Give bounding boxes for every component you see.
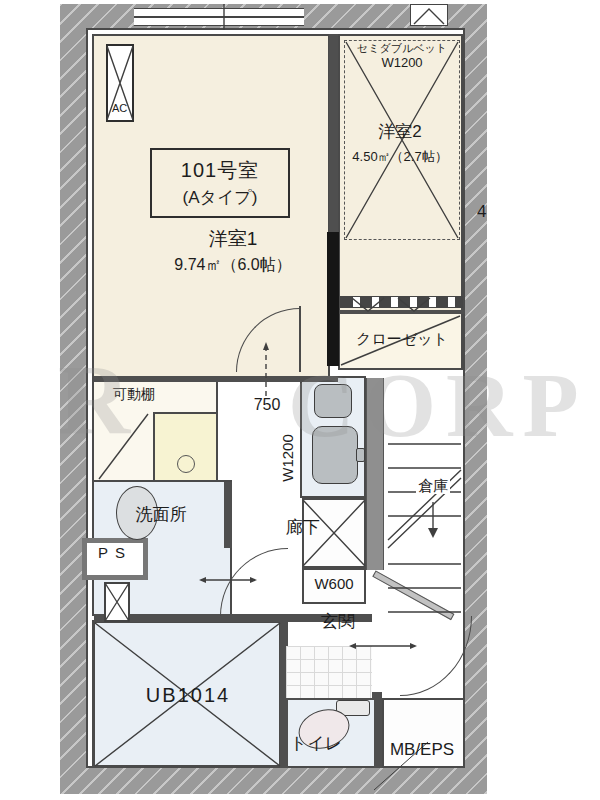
wall-washroom-right — [224, 482, 232, 548]
entrance-label: 玄関 — [321, 612, 355, 632]
unit-type: (Aタイプ) — [183, 186, 258, 209]
ps-label: PS — [98, 544, 132, 561]
shelf-label: 可動棚 — [113, 386, 155, 402]
unit-number: 101号室 — [181, 157, 259, 184]
wall-room1-bottom — [94, 376, 338, 382]
w600-label: W600 — [314, 575, 353, 592]
stove-handle-icon — [356, 448, 365, 462]
washer-drain-icon — [177, 455, 195, 473]
wall-kitchen-stairs — [366, 378, 384, 570]
unit-label-box: 101号室 (Aタイプ) — [150, 148, 290, 218]
floor-plan: 101号室 (Aタイプ) 洋室1 9.74㎡（6.0帖） 洋室2 4.50㎡（2… — [0, 0, 600, 800]
room1-area-label: 9.74㎡（6.0帖） — [174, 256, 291, 274]
window-top-midline — [134, 16, 304, 18]
wall-closet-top — [338, 310, 465, 314]
bath-label: UB1014 — [146, 684, 230, 707]
room1-label: 洋室1 — [209, 228, 258, 250]
washroom-label: 洗面所 — [136, 505, 187, 525]
dim-4-label: 4 — [477, 202, 486, 222]
door-leaf-room1 — [299, 306, 301, 372]
wall-toilet-right — [374, 694, 382, 768]
room2-area-label: 4.50㎡（2.7帖） — [352, 150, 447, 165]
entrance-tile — [286, 646, 372, 698]
closet-label: クローゼット — [356, 330, 448, 347]
pillar-box — [104, 582, 130, 622]
vent-box — [410, 4, 448, 26]
hanger-rail — [340, 296, 463, 308]
room2-label: 洋室2 — [378, 122, 421, 142]
corridor-label: 廊下 — [286, 518, 320, 538]
bed-width-label: W1200 — [381, 56, 422, 71]
kitchen-sink-icon — [314, 384, 352, 418]
sliding-door — [327, 232, 339, 366]
bed-label: セミダブルベット — [357, 42, 447, 55]
wall-between-rooms — [329, 34, 338, 234]
stove-icon — [312, 426, 358, 484]
toilet-label: トイレ — [290, 734, 342, 754]
storage-label: 倉庫 — [416, 477, 450, 494]
dim-750-label: 750 — [254, 396, 281, 414]
mb-eps-label: MB/EPS — [390, 740, 454, 760]
ac-label: AC — [112, 102, 127, 115]
kitchen-width-label: W1200 — [279, 434, 296, 482]
